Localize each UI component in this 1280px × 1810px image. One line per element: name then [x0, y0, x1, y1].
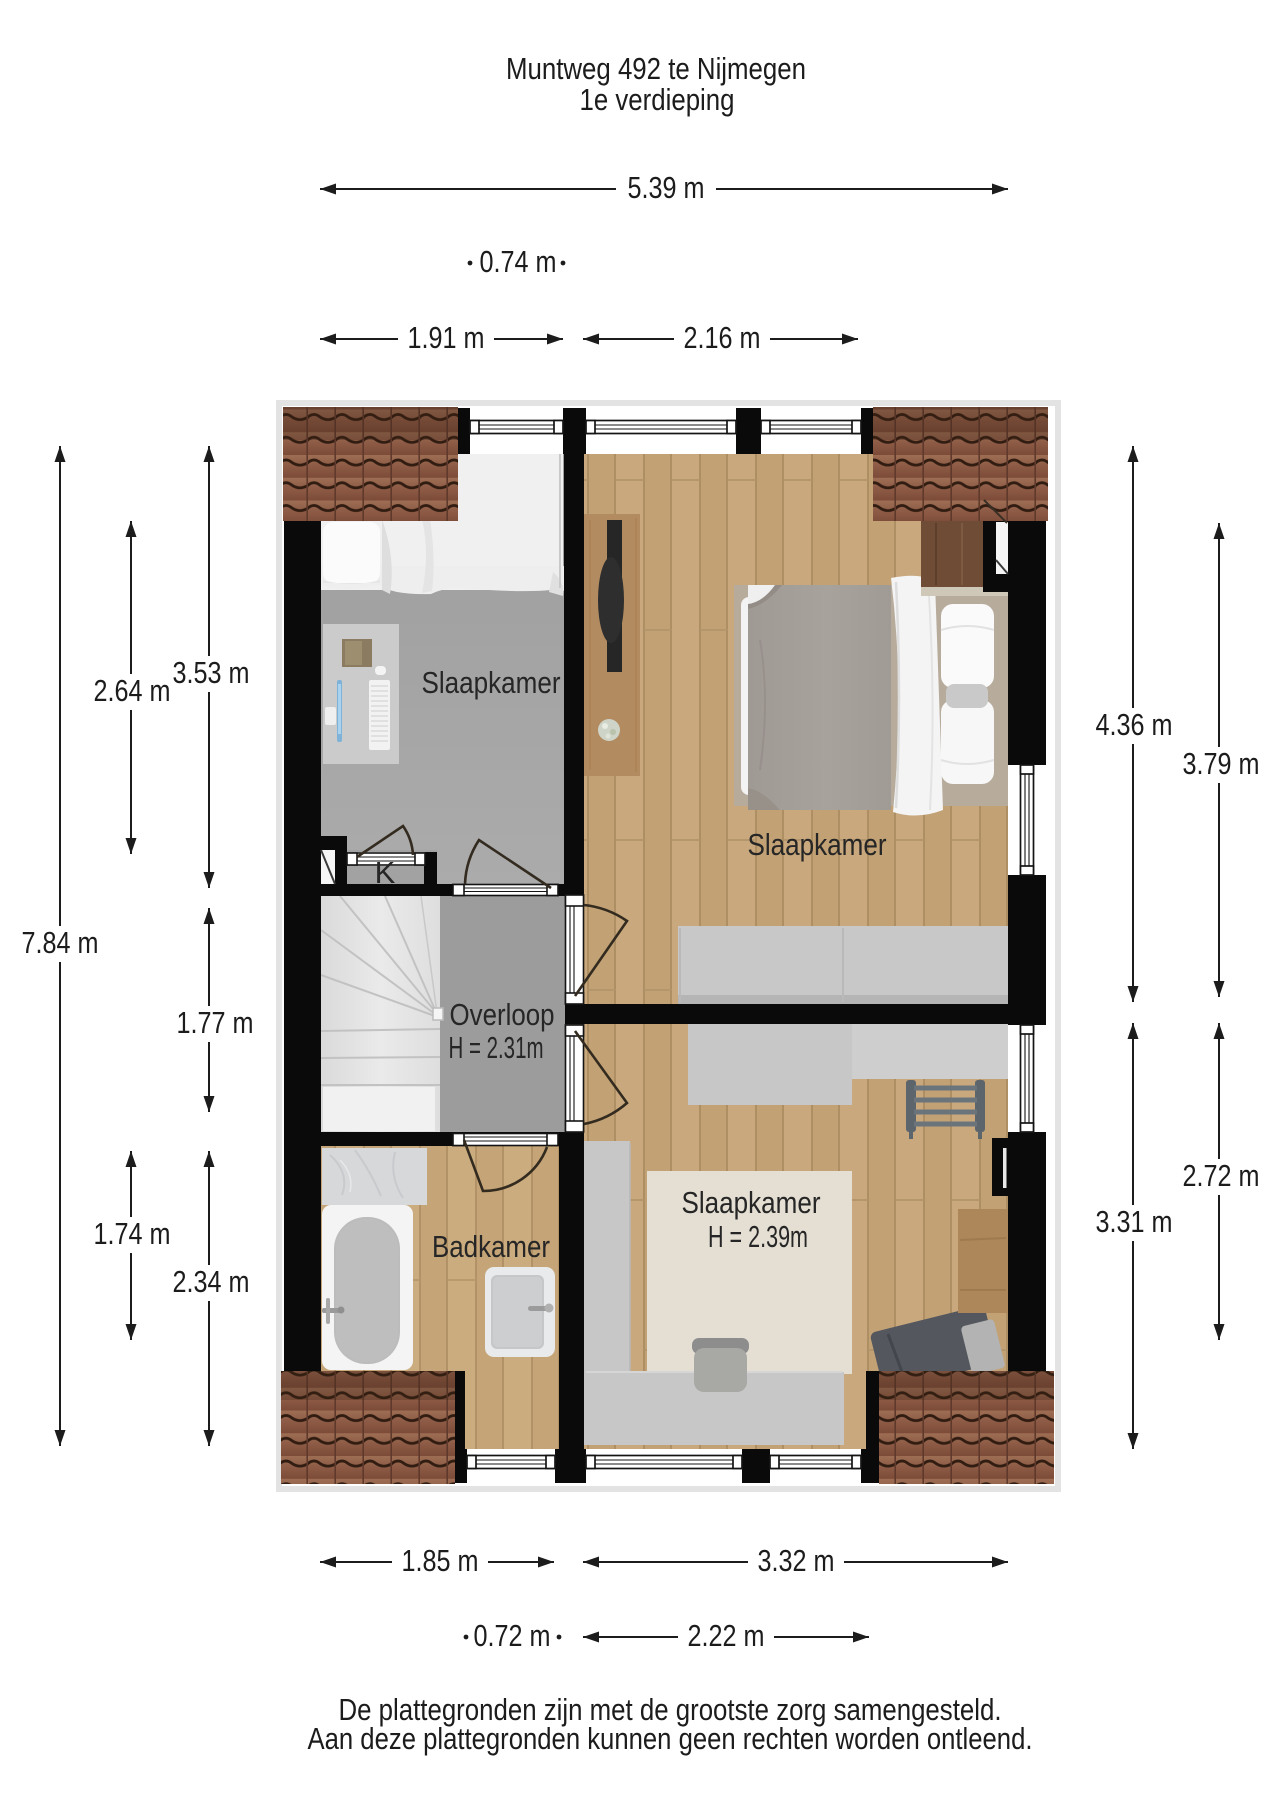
svg-text:7.84 m: 7.84 m	[22, 925, 99, 960]
svg-text:3.32 m: 3.32 m	[758, 1543, 835, 1578]
svg-text:3.31 m: 3.31 m	[1096, 1204, 1173, 1239]
svg-text:Overloop: Overloop	[450, 997, 555, 1032]
svg-text:Slaapkamer: Slaapkamer	[748, 827, 887, 862]
svg-text:0.72 m: 0.72 m	[474, 1618, 551, 1653]
svg-text:3.79 m: 3.79 m	[1183, 746, 1260, 781]
svg-text:H = 2.39m: H = 2.39m	[708, 1219, 808, 1254]
svg-text:2.16 m: 2.16 m	[684, 320, 761, 355]
svg-text:Badkamer: Badkamer	[432, 1229, 550, 1264]
svg-text:H = 2.31m: H = 2.31m	[449, 1030, 544, 1065]
svg-text:2.34 m: 2.34 m	[173, 1264, 250, 1299]
svg-text:1.85 m: 1.85 m	[402, 1543, 479, 1578]
svg-text:5.39 m: 5.39 m	[628, 170, 705, 205]
svg-text:1.91 m: 1.91 m	[408, 320, 485, 355]
svg-text:1e verdieping: 1e verdieping	[580, 82, 735, 117]
svg-text:4.36 m: 4.36 m	[1096, 707, 1173, 742]
svg-text:Slaapkamer: Slaapkamer	[682, 1185, 821, 1220]
svg-text:1.74 m: 1.74 m	[94, 1216, 171, 1251]
svg-text:2.22 m: 2.22 m	[688, 1618, 765, 1653]
svg-text:Muntweg 492 te Nijmegen: Muntweg 492 te Nijmegen	[506, 51, 806, 86]
svg-text:1.77 m: 1.77 m	[177, 1005, 254, 1040]
svg-text:Aan deze plattegronden kunnen: Aan deze plattegronden kunnen geen recht…	[308, 1721, 1033, 1756]
svg-text:0.74 m: 0.74 m	[480, 244, 557, 279]
svg-text:2.64 m: 2.64 m	[94, 673, 171, 708]
svg-text:Slaapkamer: Slaapkamer	[422, 665, 561, 700]
svg-text:3.53 m: 3.53 m	[173, 655, 250, 690]
svg-text:2.72 m: 2.72 m	[1183, 1158, 1260, 1193]
svg-text:K: K	[375, 855, 396, 890]
